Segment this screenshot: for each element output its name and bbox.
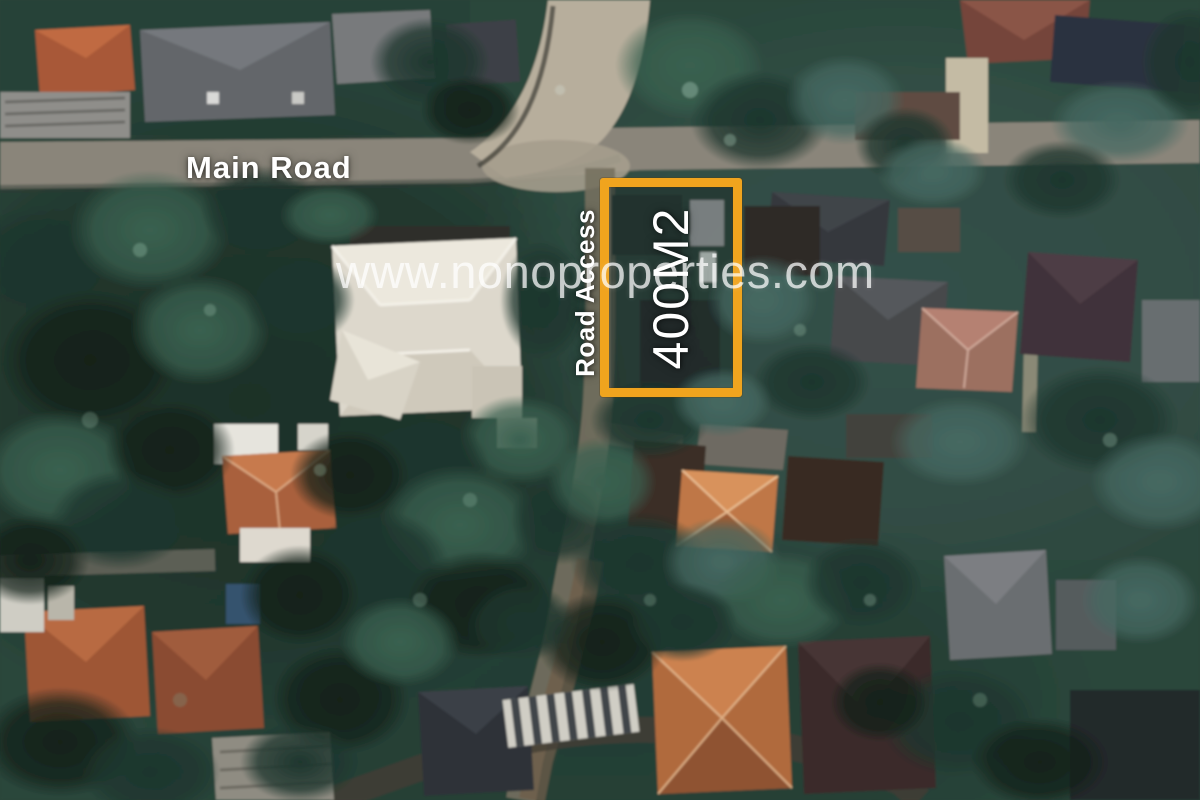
main-road-label: Main Road <box>186 150 352 186</box>
listing-photo: Main Road Road Access 400M2 www.nonoprop… <box>0 0 1200 800</box>
aerial-basemap-illustration <box>0 0 1200 800</box>
watermark: www.nonoproperties.com <box>336 244 875 299</box>
